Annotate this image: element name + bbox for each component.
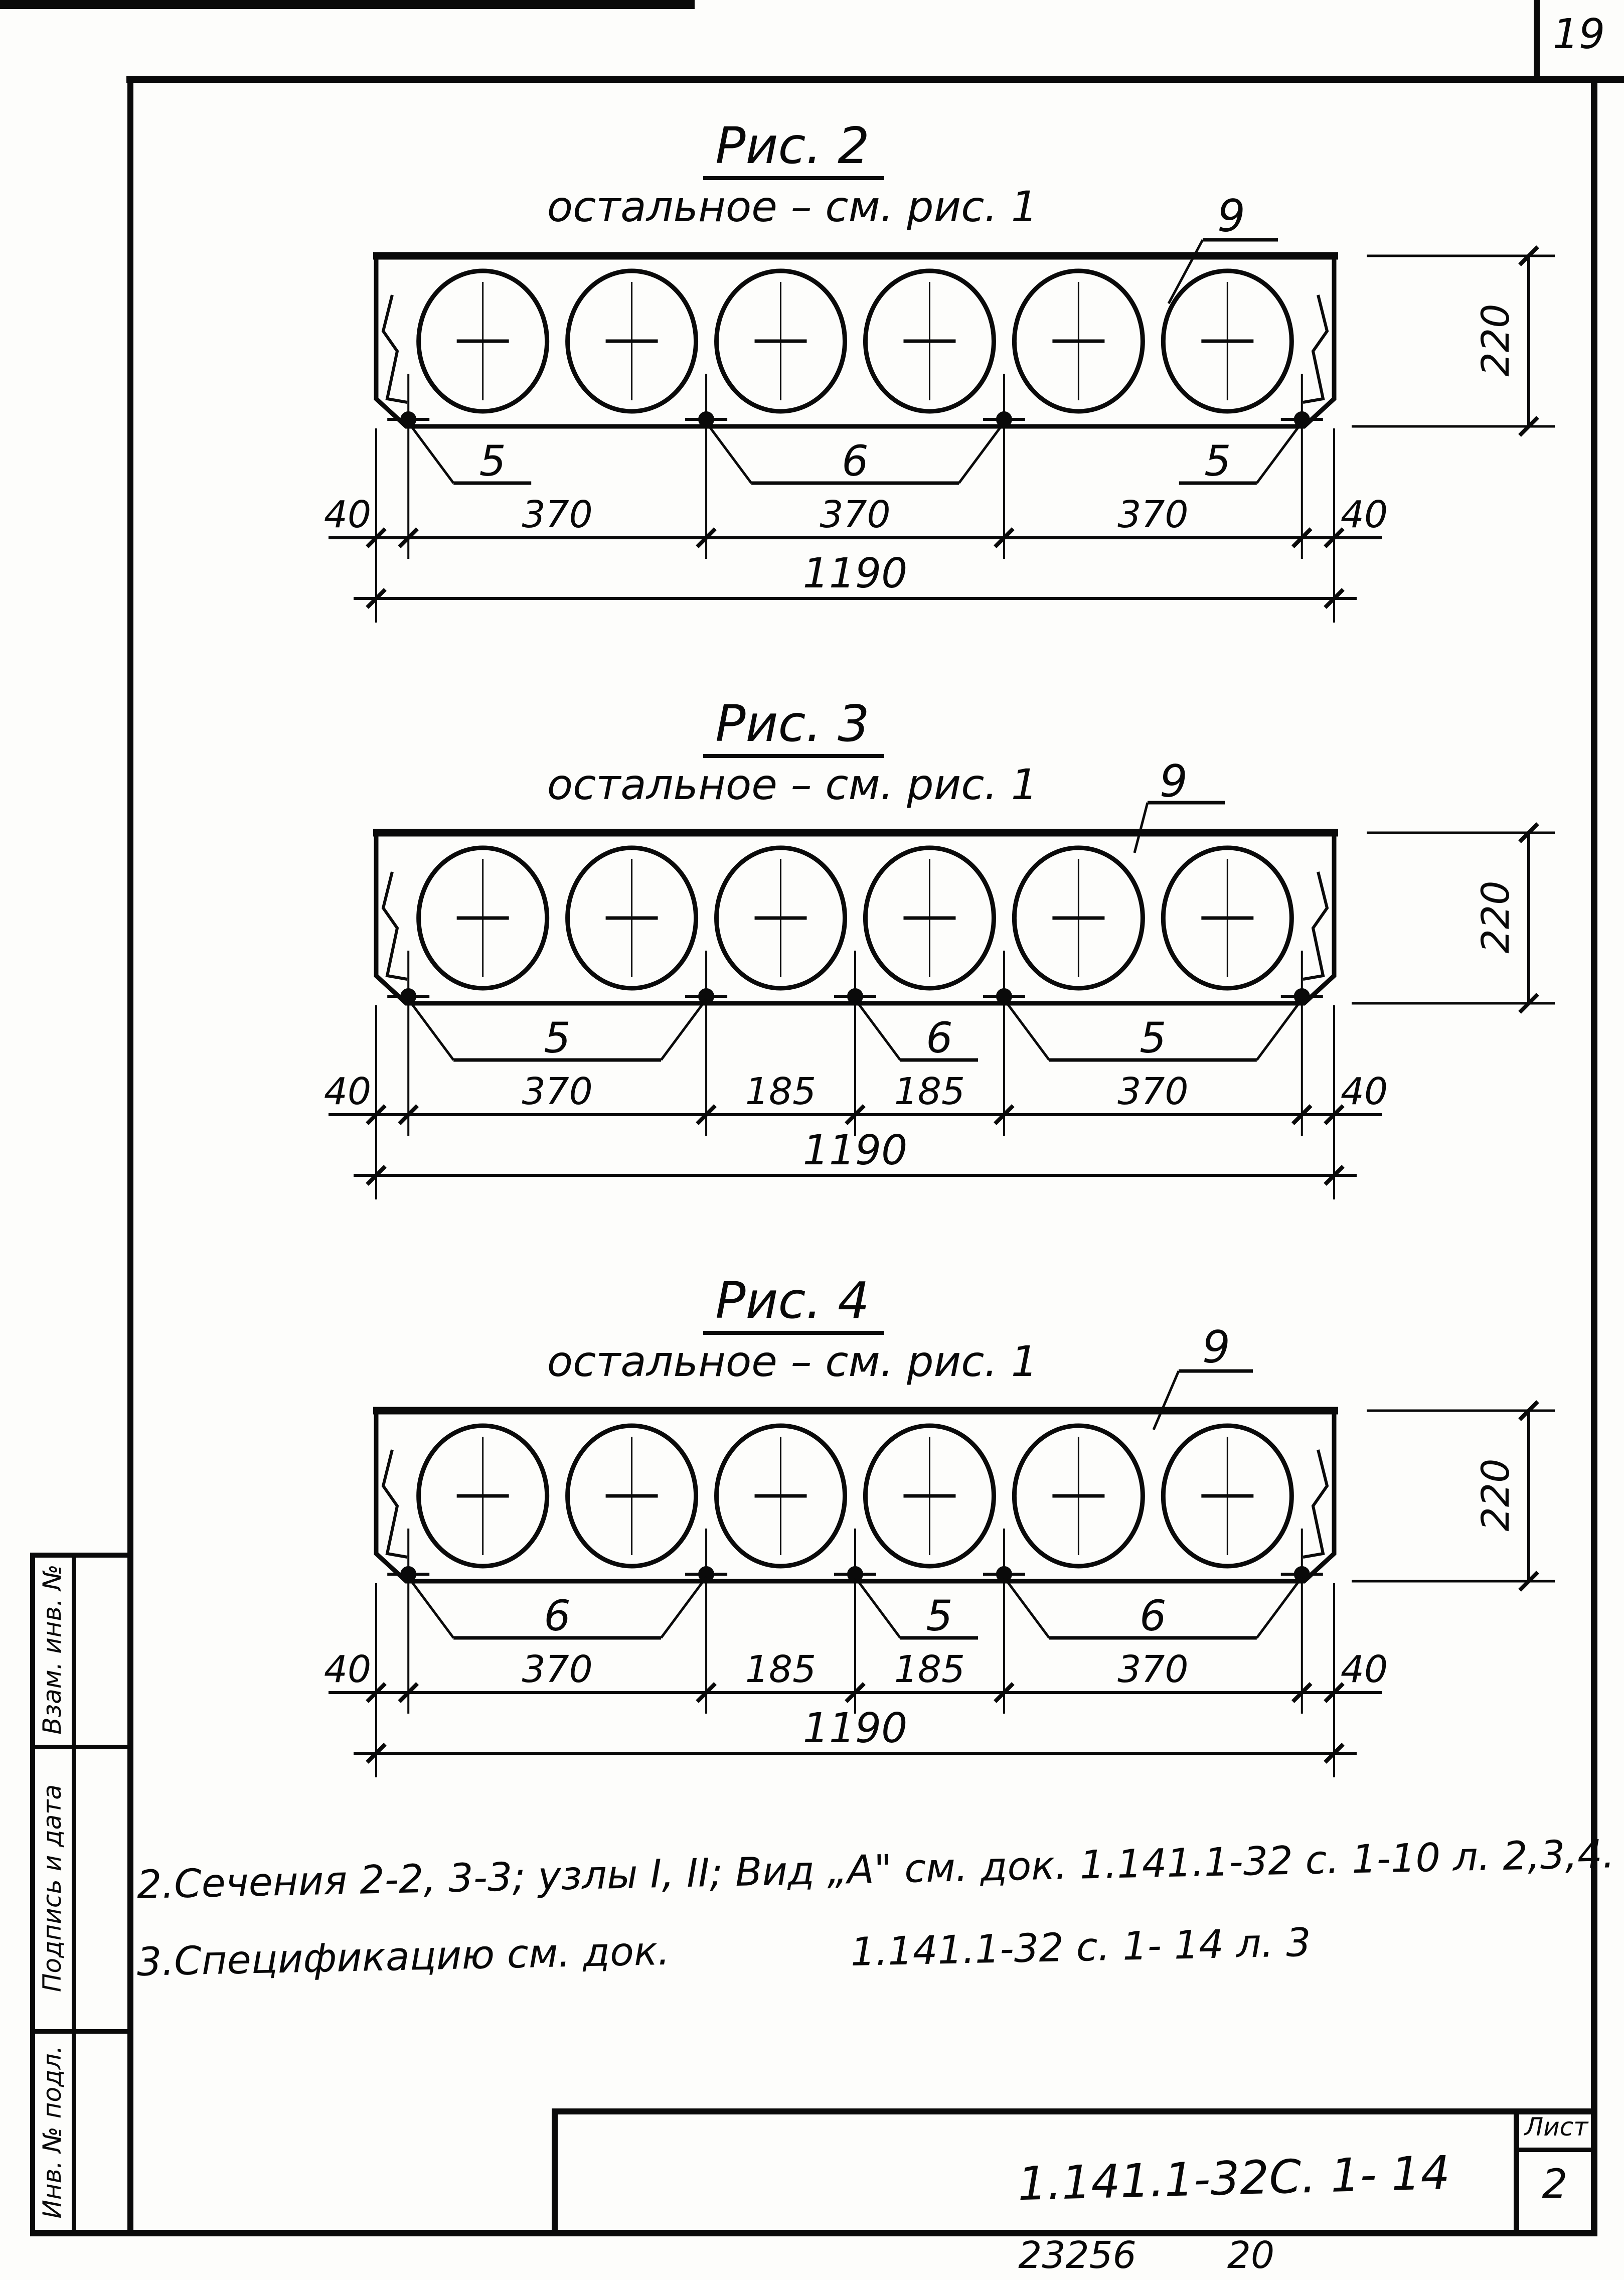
item-label-9: 9 (1160, 758, 1188, 805)
dim-label: 185 (745, 1073, 816, 1112)
dim-label: 370 (522, 1073, 593, 1112)
total-dim-label: 1190 (803, 1707, 908, 1750)
dim-label: 40 (324, 1073, 371, 1112)
dim-label: 370 (1117, 496, 1188, 535)
callout-label: 6 (842, 439, 868, 483)
dim-label: 185 (894, 1073, 965, 1112)
figure-subtitle: остальное – см. рис. 1 (547, 185, 1038, 229)
callout-label: 5 (1204, 439, 1231, 483)
dim-label: 370 (1117, 1650, 1188, 1690)
dim-label: 370 (522, 496, 593, 535)
height-dim-label: 220 (1476, 1458, 1516, 1531)
callout-label: 5 (926, 1594, 952, 1638)
dim-label: 185 (745, 1650, 816, 1690)
callout-label: 5 (1140, 1016, 1166, 1060)
total-dim-label: 1190 (803, 1129, 908, 1172)
figure-subtitle: остальное – см. рис. 1 (547, 763, 1038, 807)
height-dim-label: 220 (1476, 303, 1516, 376)
figure-title: Рис. 2 (715, 119, 869, 172)
dim-label: 185 (894, 1650, 965, 1690)
height-dim-label: 220 (1476, 880, 1516, 953)
dim-label: 370 (522, 1650, 593, 1690)
figure-title: Рис. 4 (715, 1274, 869, 1327)
item-label-9: 9 (1217, 193, 1245, 239)
dim-label: 40 (1341, 1073, 1388, 1112)
callout-label: 6 (926, 1016, 952, 1060)
dim-label: 40 (1341, 1650, 1388, 1690)
callout-label: 5 (544, 1016, 570, 1060)
total-dim-label: 1190 (803, 552, 908, 595)
scanned-drawing-sheet: { "page": { "sheet_number_top": "19", "f… (0, 0, 1624, 2280)
item-label-9: 9 (1202, 1324, 1230, 1371)
dim-label: 40 (1341, 496, 1388, 535)
figure-title: Рис. 3 (715, 697, 869, 750)
figure-subtitle: остальное – см. рис. 1 (547, 1339, 1038, 1384)
dim-label: 40 (324, 1650, 371, 1690)
dim-label: 370 (1117, 1073, 1188, 1112)
dim-label: 40 (324, 496, 371, 535)
dim-label: 370 (820, 496, 890, 535)
callout-label: 5 (479, 439, 506, 483)
callout-label: 6 (1140, 1594, 1166, 1638)
callout-label: 6 (544, 1594, 570, 1638)
